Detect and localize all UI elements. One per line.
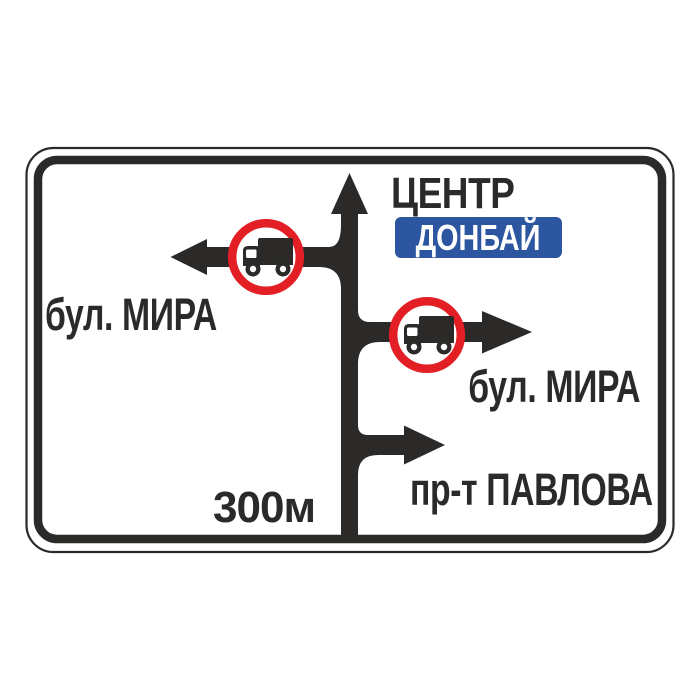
distance-label: 300м xyxy=(213,486,315,530)
route-plate-label: ДОНБАЙ xyxy=(416,220,541,256)
street-name-far-right: пр-т ПАВЛОВА xyxy=(410,467,653,512)
no-trucks-sign-left xyxy=(232,223,300,291)
street-name-left: бул. МИРА xyxy=(45,292,217,337)
no-trucks-sign-right xyxy=(393,301,461,369)
sign-graphics xyxy=(0,0,700,700)
street-name-right: бул. МИРА xyxy=(468,364,640,409)
road-sign-image: ЦЕНТР ДОНБАЙ бул. МИРА бул. МИРА пр-т ПА… xyxy=(0,0,700,700)
route-plate: ДОНБАЙ xyxy=(395,217,562,258)
destination-straight-label: ЦЕНТР xyxy=(391,172,514,216)
